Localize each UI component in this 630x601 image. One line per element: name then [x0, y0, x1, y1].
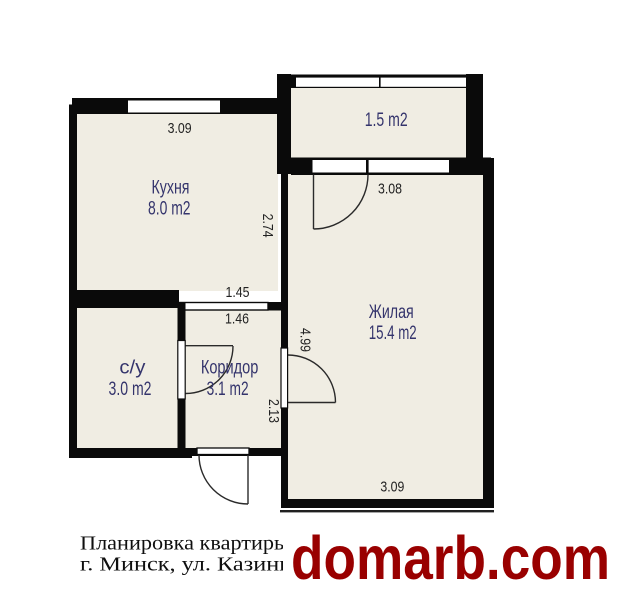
svg-text:1.5 m2: 1.5 m2 — [365, 110, 408, 131]
svg-text:domarb.com: domarb.com — [291, 524, 610, 592]
svg-text:Планировка квартиры: Планировка квартиры — [80, 533, 289, 555]
svg-text:3.1 m2: 3.1 m2 — [207, 379, 249, 400]
svg-text:3.08: 3.08 — [378, 181, 402, 198]
svg-text:2.13: 2.13 — [265, 399, 282, 423]
svg-text:3.0 m2: 3.0 m2 — [109, 379, 152, 400]
svg-text:1.46: 1.46 — [225, 310, 249, 327]
svg-text:г. Минск, ул. Казинца: г. Минск, ул. Казинца — [80, 554, 303, 576]
svg-text:Жилая: Жилая — [369, 302, 414, 323]
svg-text:4.99: 4.99 — [297, 328, 314, 352]
svg-text:15.4 m2: 15.4 m2 — [369, 323, 417, 344]
svg-text:3.09: 3.09 — [380, 479, 404, 496]
svg-text:Кухня: Кухня — [152, 178, 190, 199]
svg-text:Коридор: Коридор — [201, 358, 259, 379]
svg-text:3.09: 3.09 — [168, 120, 192, 137]
svg-text:2.74: 2.74 — [259, 214, 276, 238]
svg-text:1.45: 1.45 — [226, 284, 250, 301]
svg-text:8.0 m2: 8.0 m2 — [148, 199, 191, 220]
svg-text:с/у: с/у — [119, 358, 146, 379]
